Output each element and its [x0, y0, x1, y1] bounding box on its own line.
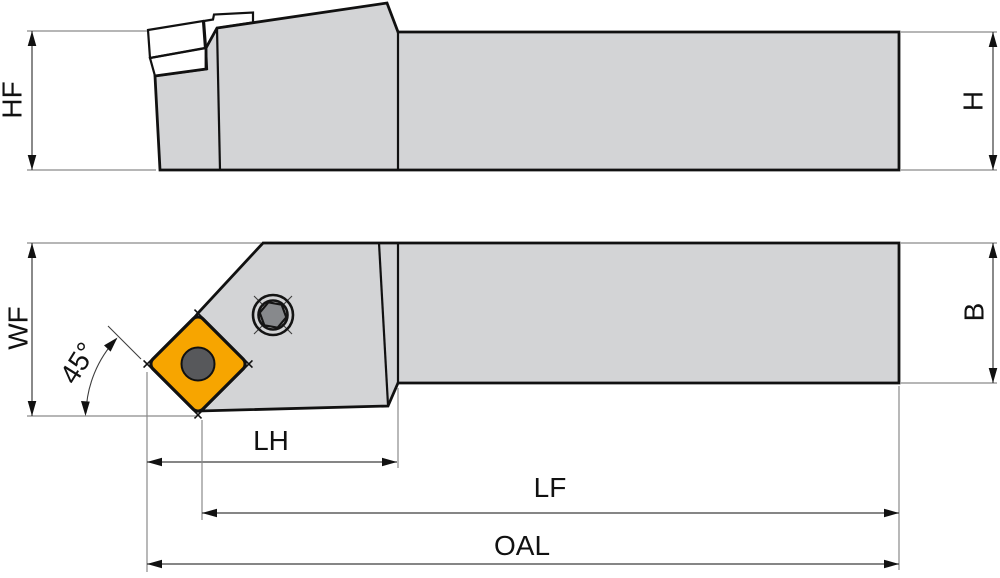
- technical-drawing: HF H: [0, 0, 1000, 578]
- dim-b: B: [901, 243, 997, 383]
- dim-oal-label: OAL: [494, 530, 550, 561]
- clamp-screw-icon: [253, 295, 293, 335]
- tool-holder-drawing-page: HF H: [0, 0, 1000, 578]
- dim-h: H: [901, 32, 997, 170]
- dim-hf-label: HF: [0, 81, 28, 118]
- insert-hole: [182, 348, 215, 381]
- side-view: [148, 3, 899, 170]
- dim-lf-label: LF: [534, 472, 567, 503]
- top-view: [140, 243, 899, 422]
- dim-lh-label: LH: [253, 425, 289, 456]
- angle-label: 45°: [54, 337, 103, 389]
- dim-h-label: H: [958, 91, 989, 111]
- side-view-body: [155, 3, 899, 170]
- dim-b-label: B: [959, 303, 990, 322]
- angle-annotation: 45°: [54, 326, 141, 416]
- dim-lf: LF: [202, 386, 899, 570]
- dim-oal: OAL: [147, 530, 899, 568]
- dim-wf-label: WF: [3, 306, 34, 350]
- side-view-insert: [148, 21, 205, 58]
- dim-hf: HF: [0, 31, 156, 170]
